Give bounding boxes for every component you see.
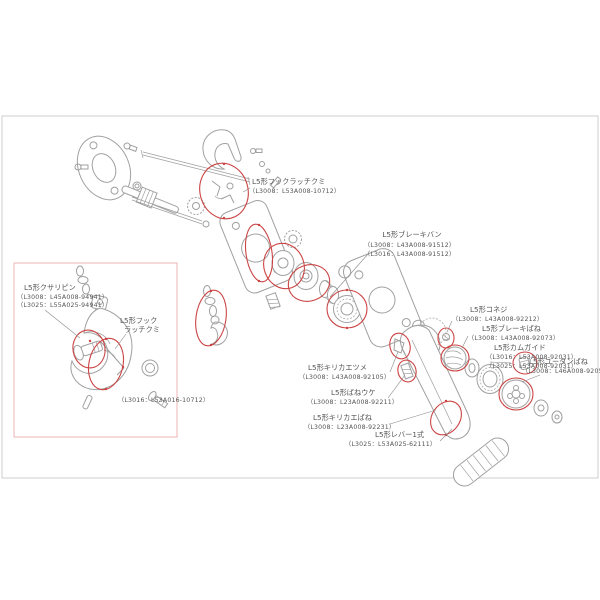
hand-wheel-flange: [67, 128, 140, 209]
freewheel-knob: [502, 380, 530, 408]
spring-cup: [465, 359, 479, 377]
frame-plate-left: [217, 198, 296, 296]
label-lever-name: L5形レバー1式: [375, 430, 424, 439]
label-brake-band-pn2: （L3016：L43A008-91512）: [364, 251, 455, 258]
hatched-block: [266, 293, 281, 311]
label-switch-pawl-name: L5形キリカエツメ: [308, 363, 367, 372]
label-chain-pin-name: L5形クサリピン: [24, 283, 76, 292]
label-hook-latch-box-name2: ラッチクミ: [124, 325, 160, 334]
label-hook-latch-box-name1: L5形フック: [120, 316, 157, 325]
leader-switch-spring: [390, 410, 436, 424]
label-small-screw-pn: （L3008：L43A008-92212）: [452, 316, 543, 323]
chain-links-sample: [204, 286, 228, 346]
label-brake-spring-pn: （L3008：L43A008-92073）: [468, 335, 559, 342]
end-cap: [552, 411, 562, 423]
chain-pin-part: [72, 338, 104, 361]
label-hook-latch-box-pn: （L3016：L53A016-10712）: [118, 397, 209, 404]
label-brake-band-name: L5形ブレーキバン: [382, 230, 441, 239]
brake-disc-2: [294, 263, 318, 290]
label-u-turn-spring-pn: （L3008：L46A008-92052）: [522, 368, 600, 375]
label-brake-spring-name: L5形ブレーキばね: [482, 324, 541, 333]
parts-diagram-page: L5形フックラッチクミ （L3008：L53A008-10712） L5形ブレー…: [0, 0, 600, 600]
small-screw-part: [443, 334, 451, 341]
label-switch-spring-name: L5形キリカエばね: [313, 413, 372, 422]
leader-chain-pin: [45, 310, 80, 338]
lever-grip: [449, 434, 513, 491]
label-hook-latch-top-pn: （L3008：L53A008-10712）: [249, 188, 340, 195]
washer-right: [534, 400, 548, 416]
label-spring-seat-name: L5形ばねウケ: [331, 388, 376, 397]
label-spring-seat-pn: （L3008：L23A008-92211）: [307, 399, 398, 406]
brake-spring-coil: [444, 347, 466, 369]
label-cam-guide-name: L5形カムガイド: [494, 343, 546, 352]
label-hook-latch-top-name: L5形フックラッチクミ: [252, 177, 325, 186]
label-small-screw-name: L5形コネジ: [470, 305, 507, 314]
label-chain-pin-pn2: （L3025：L55A025-94941）: [17, 302, 108, 309]
leader-spring-seat: [388, 375, 405, 398]
pinion-gear-small: [285, 231, 302, 248]
label-u-turn-spring-name: L5形ユータンばね: [529, 357, 588, 366]
label-chain-pin-pn1: （L3008：L45A008-94941）: [17, 294, 108, 301]
label-switch-pawl-pn: （L3008：L43A008-92105）: [299, 374, 390, 381]
leader-u-turn-spring: [522, 375, 540, 382]
label-brake-band-pn1: （L3008：L43A008-91512）: [364, 242, 455, 249]
hook-nut: [142, 360, 158, 376]
brake-disc-1: [272, 251, 294, 276]
exploded-view-svg: L5形フックラッチクミ （L3008：L53A008-10712） L5形ブレー…: [0, 0, 600, 600]
mount-bolt-2: [123, 142, 137, 152]
label-lever-pn: （L3025：L53A025-62111）: [345, 441, 436, 448]
top-hook-latch-parts: [212, 181, 234, 203]
